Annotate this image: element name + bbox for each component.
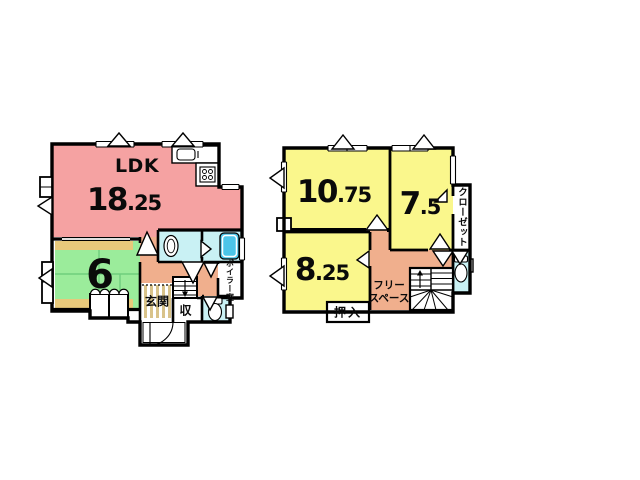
washbasin-icon [164,236,178,257]
room-7-5-label: 7.5 [400,186,441,222]
room-10-75-label: 10.75 [297,174,371,210]
stove-icon [200,167,215,182]
entrance-door-arc [150,322,173,345]
entrance-label: 玄関 [145,293,169,310]
stairs-2f [410,268,453,310]
ldk-size-dec: .25 [127,191,161,215]
floorplan-image: LDK 18.25 6 玄関 収 ボイラー室 10.75 7.5 8.25 クロ… [0,0,640,480]
porch [143,322,185,345]
tatami-size-label: 6 [86,252,114,298]
boiler-room-label: ボイラー室 [225,259,236,302]
oshiire-label: 押入 [334,304,362,321]
closet-label: クローゼット [454,187,468,247]
ldk-label: LDK [115,155,159,177]
free-space-label: フリー スペース [369,279,410,304]
bathtub-icon [220,233,239,259]
ldk-size-label: 18.25 [87,182,161,218]
storage-label: 収 [179,302,192,319]
sliding-door [52,238,140,241]
ldk-size-int: 18 [87,182,127,218]
room-8-25-label: 8.25 [295,252,349,288]
tatami-edge-top [55,241,133,250]
floorplan-drawing [0,0,640,480]
kitchen-sink-icon [177,149,195,160]
